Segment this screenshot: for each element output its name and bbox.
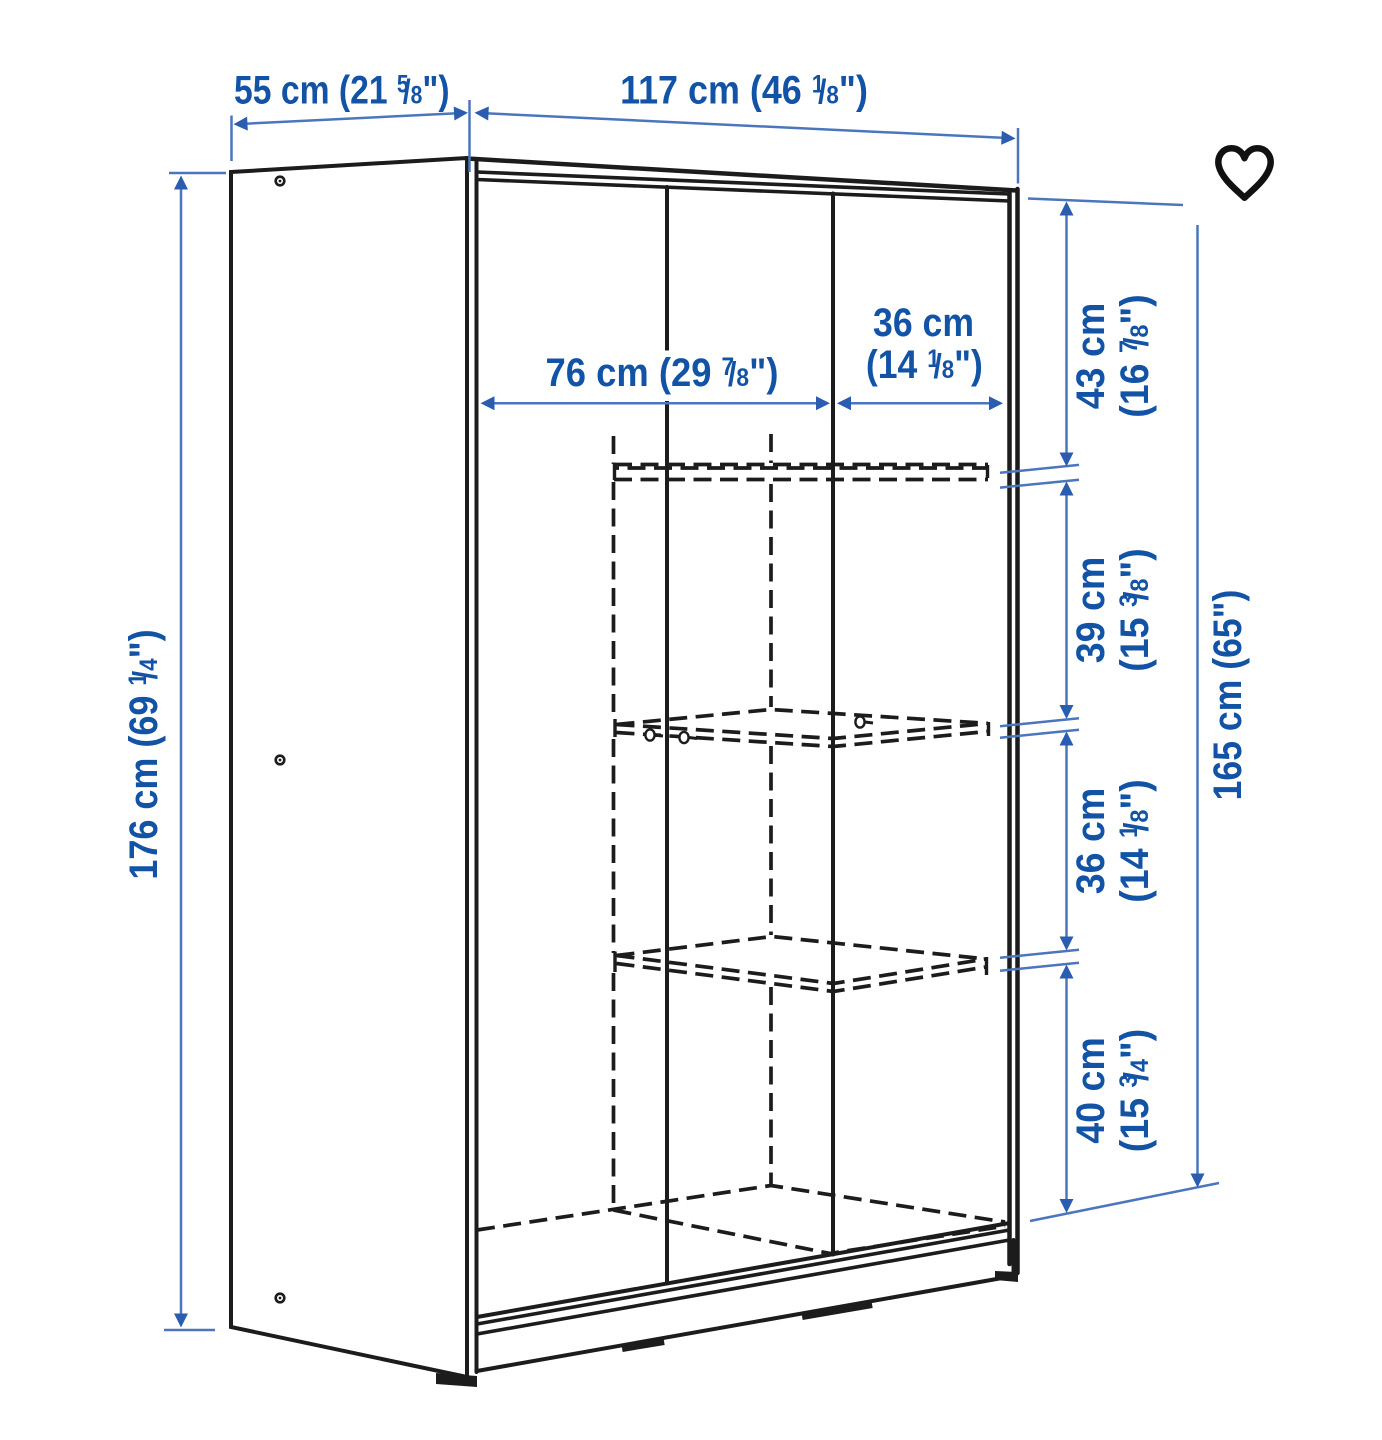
svg-text:40 cm(15 3/4"): 40 cm(15 3/4") <box>1069 1029 1157 1153</box>
svg-text:36 cm(14 1/8"): 36 cm(14 1/8") <box>866 301 983 387</box>
svg-text:39 cm(15 3/8"): 39 cm(15 3/8") <box>1069 548 1157 672</box>
svg-text:36 cm(14 1/8"): 36 cm(14 1/8") <box>1069 779 1157 903</box>
svg-text:43 cm(16 7/8"): 43 cm(16 7/8") <box>1069 294 1157 418</box>
svg-text:165 cm (65"): 165 cm (65") <box>1206 590 1250 801</box>
